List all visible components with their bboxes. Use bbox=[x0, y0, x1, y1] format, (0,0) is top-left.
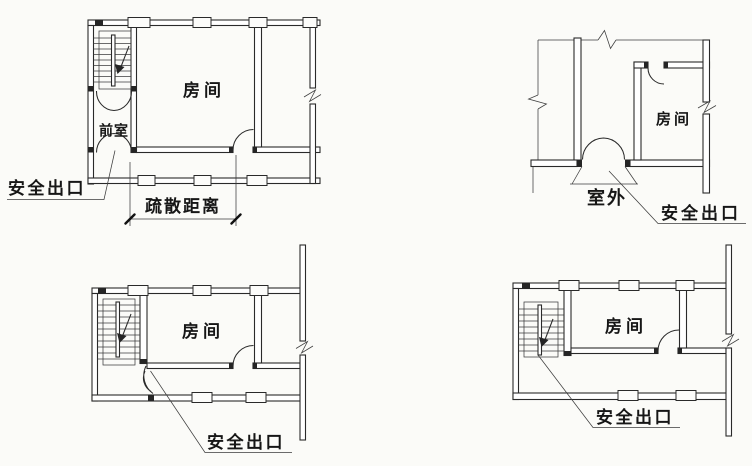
wall-caps bbox=[522, 283, 682, 356]
plan-bottom-left: 房间 安全出口 bbox=[0, 233, 376, 466]
window-marks bbox=[128, 286, 268, 403]
break-mark bbox=[529, 95, 547, 109]
door-swing-stair-exit bbox=[143, 366, 153, 394]
break-mark bbox=[722, 335, 739, 347]
break-mark bbox=[296, 342, 313, 354]
room-label: 房间 bbox=[605, 316, 647, 337]
walls bbox=[88, 20, 320, 184]
vestibule-label: 前室 bbox=[99, 123, 129, 140]
stairs bbox=[519, 302, 565, 357]
door-swing-stair-to-vestibule bbox=[96, 91, 131, 111]
plan-top-left: 前室 房间 安全出口 疏散距离 bbox=[0, 0, 376, 233]
door-swing-exterior-exit bbox=[583, 138, 625, 160]
safety-exit-label: 安全出口 bbox=[207, 432, 285, 453]
outdoor-label: 室外 bbox=[587, 187, 627, 209]
window-marks bbox=[559, 281, 696, 401]
door-swing-room bbox=[648, 68, 664, 84]
break-mark bbox=[598, 31, 616, 49]
exterior-threshold bbox=[570, 167, 638, 185]
safety-exit-label: 安全出口 bbox=[661, 203, 741, 224]
room-label: 房间 bbox=[182, 321, 224, 342]
break-mark bbox=[304, 90, 321, 102]
door-swing-room bbox=[233, 130, 254, 151]
break-mark bbox=[698, 101, 716, 113]
walls bbox=[92, 245, 306, 440]
stairs bbox=[94, 31, 132, 89]
door-swing-room bbox=[233, 346, 254, 367]
room-label: 房间 bbox=[183, 80, 225, 101]
evacuation-distance-label: 疏散距离 bbox=[145, 196, 221, 217]
plan-top-right: 房间 室外 安全出口 bbox=[376, 0, 752, 233]
room-label: 房间 bbox=[656, 110, 692, 128]
wall-caps bbox=[98, 288, 257, 402]
safety-exit-label: 安全出口 bbox=[596, 407, 674, 428]
stairs bbox=[98, 299, 141, 365]
door-swing-room bbox=[658, 330, 679, 351]
safety-exit-label: 安全出口 bbox=[8, 178, 86, 199]
plan-bottom-right: 房间 安全出口 bbox=[376, 233, 752, 466]
evacuation-plan-figure: 前室 房间 安全出口 疏散距离 bbox=[0, 0, 752, 466]
window-marks bbox=[128, 18, 317, 186]
